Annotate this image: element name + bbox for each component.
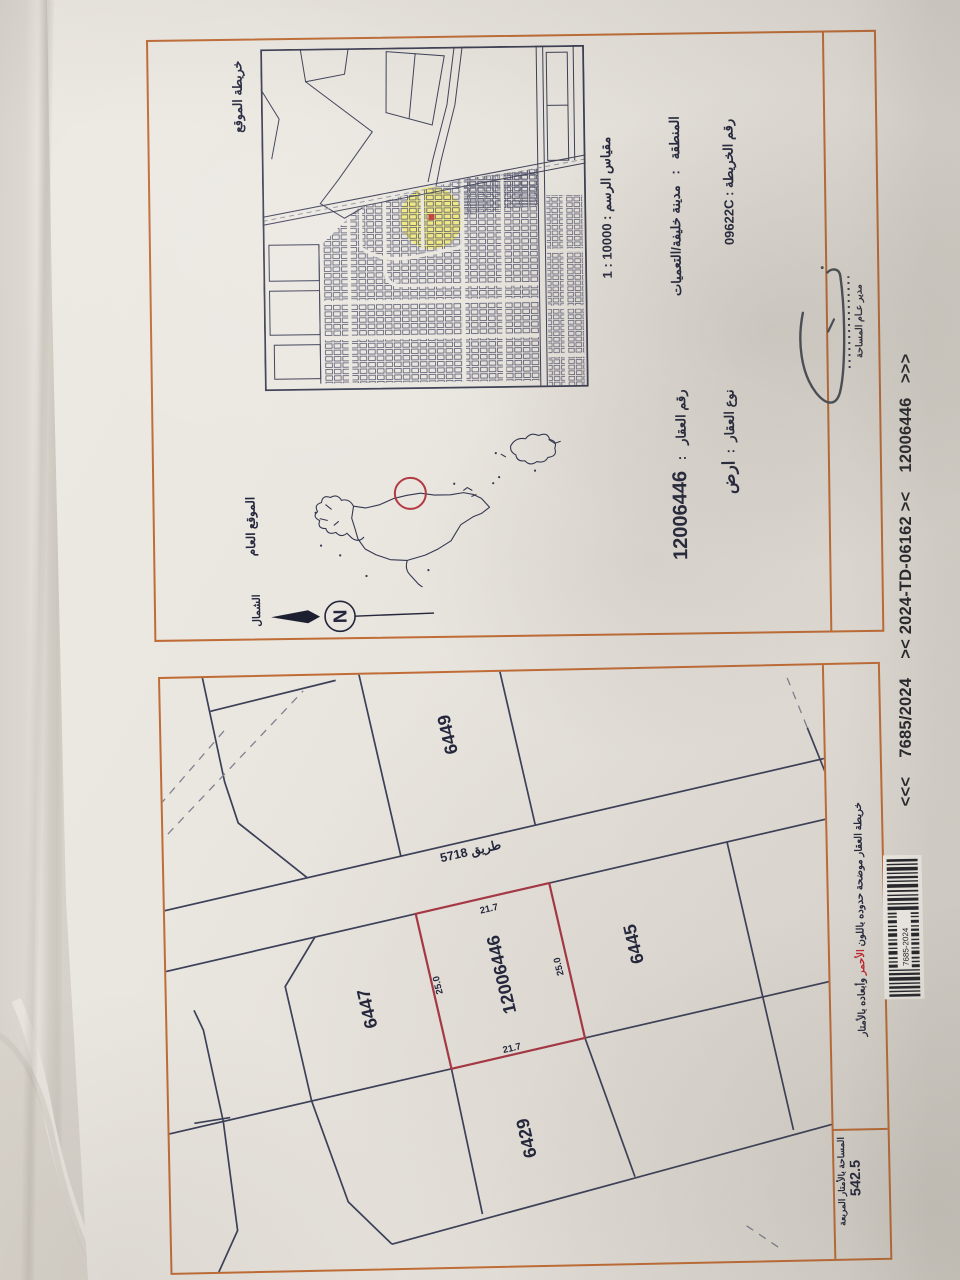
svg-text:6447: 6447 [353, 987, 381, 1031]
svg-text:25.0: 25.0 [552, 956, 567, 977]
svg-text:7685-2024: 7685-2024 [901, 927, 911, 966]
svg-text:N: N [330, 609, 351, 623]
svg-text:6445: 6445 [619, 922, 647, 966]
svg-text:21.7: 21.7 [479, 902, 500, 917]
svg-text:طريق 5718: طريق 5718 [439, 838, 503, 867]
svg-text:6429: 6429 [512, 1116, 540, 1160]
svg-text:6449: 6449 [433, 713, 461, 757]
svg-text:12006446: 12006446 [483, 933, 521, 1016]
